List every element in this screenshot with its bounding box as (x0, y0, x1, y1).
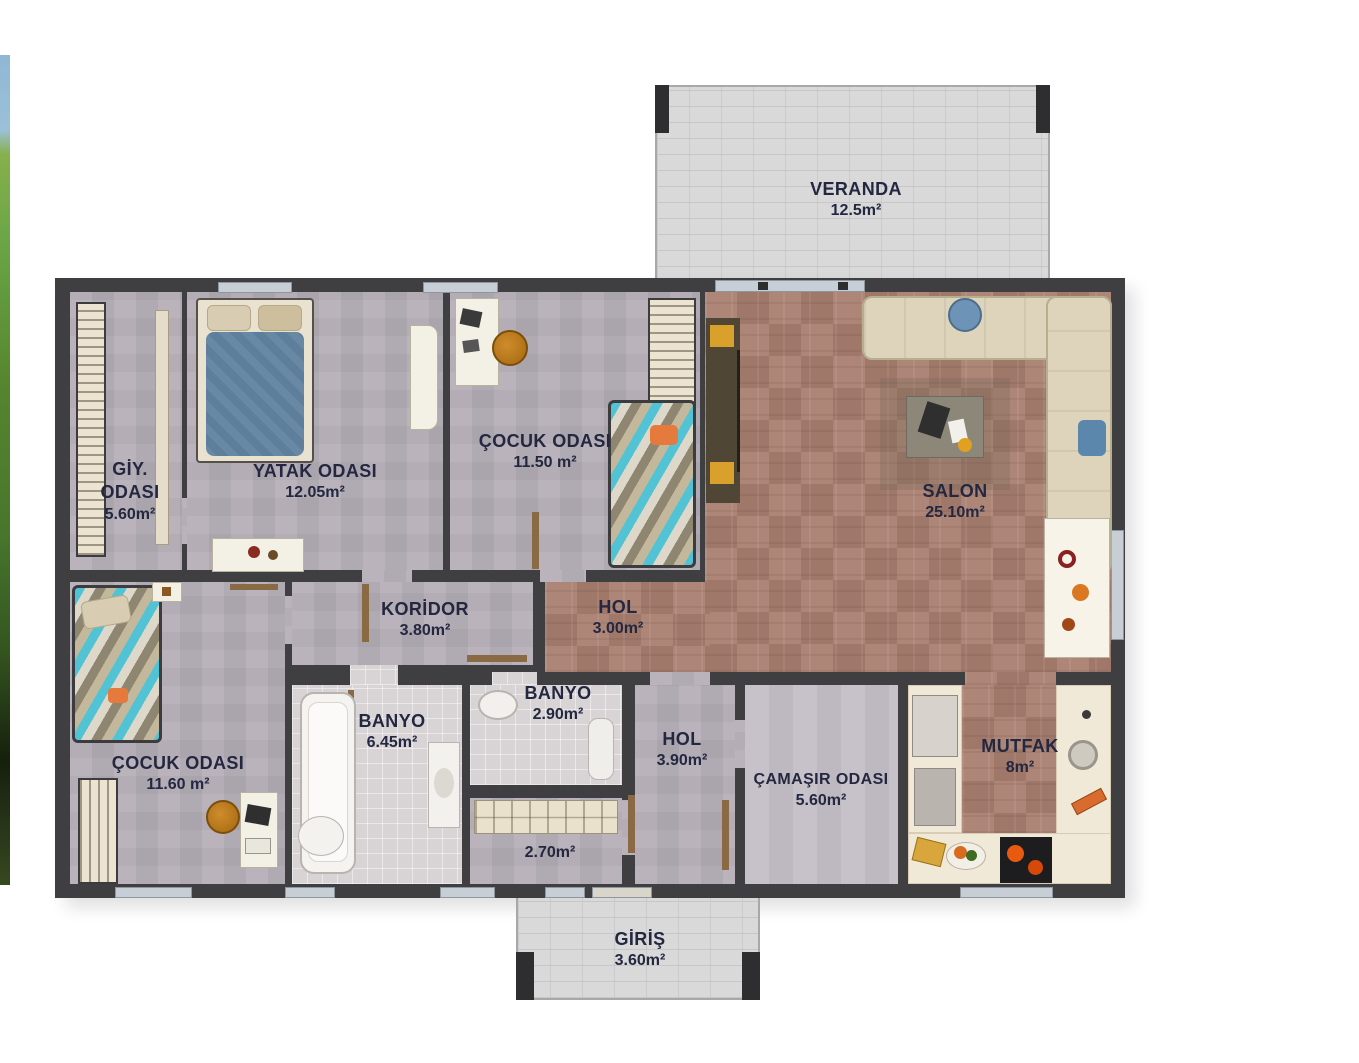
shelf-unit (474, 800, 618, 834)
plate (1062, 618, 1075, 631)
tv-unit-accent (710, 462, 734, 484)
window (115, 887, 192, 898)
room-area: 8m² (981, 758, 1058, 779)
room-area: 11.60 m² (112, 775, 244, 796)
pillow (650, 425, 678, 445)
room-name: ÇAMAŞIR ODASI (754, 770, 889, 791)
desk (240, 792, 278, 868)
door-opening-hol-alt (650, 672, 710, 685)
door-opening-yatak (362, 570, 412, 582)
room-area: 3.80m² (381, 621, 469, 642)
coffee-table-decor (958, 438, 972, 452)
pillow (108, 688, 128, 703)
room-area: 11.50 m² (479, 453, 611, 474)
room-name: HOL (657, 728, 708, 751)
room-name: VERANDA (810, 178, 902, 201)
room-area: 12.05m² (253, 483, 377, 504)
pillow (258, 305, 302, 331)
entrance-door-opening (592, 887, 652, 898)
window (218, 282, 292, 293)
toilet (298, 816, 344, 856)
giris-post-right (742, 952, 760, 1000)
decor-item (268, 550, 278, 560)
room-label-koridor: KORİDOR 3.80m² (381, 598, 469, 642)
stove-burner (1028, 860, 1043, 875)
room-area: 3.60m² (614, 951, 665, 972)
kitchen-item (1082, 710, 1091, 719)
door-opening-banyo-buyuk (350, 665, 398, 685)
room-label-giris: GİRİŞ 3.60m² (614, 928, 665, 972)
desk-items (245, 838, 271, 854)
room-name: BANYO (358, 710, 425, 733)
room-hol-alt (635, 685, 735, 884)
plate (1072, 584, 1089, 601)
fridge (912, 695, 958, 757)
tv-screen (737, 350, 740, 472)
room-label-mutfak: MUTFAK 8m² (981, 735, 1058, 779)
room-area: 2.70m² (525, 843, 576, 864)
room-name: HOL (593, 596, 644, 619)
room-label-camasir-odasi: ÇAMAŞIR ODASI 5.60m² (754, 770, 889, 812)
decor-item (162, 587, 171, 596)
door-leaf (722, 800, 729, 870)
kitchen-sink (1068, 740, 1098, 770)
door-leaf (230, 584, 278, 590)
door-mark (838, 282, 848, 290)
pillow (207, 305, 251, 331)
room-area: 5.60m² (82, 505, 178, 526)
vegetables (966, 850, 977, 861)
room-label-hol-alt: HOL 3.90m² (657, 728, 708, 772)
coffee-table (906, 396, 984, 458)
room-label-salon: SALON 25.10m² (923, 480, 988, 524)
desk-chair (492, 330, 528, 366)
room-label-banyo-kucuk: BANYO 2.90m² (524, 682, 591, 726)
room-area: 5.60m² (754, 791, 889, 812)
vegetables (954, 846, 967, 859)
door-opening-cocuk-ust (540, 570, 586, 582)
room-name: KORİDOR (381, 598, 469, 621)
bed-duvet (206, 332, 304, 456)
cushion (1078, 420, 1106, 456)
toilet (588, 718, 614, 780)
room-label-banyo-buyuk: BANYO 6.45m² (358, 710, 425, 754)
tv-unit-accent (710, 325, 734, 347)
room-label-cocuk-odasi-alt: ÇOCUK ODASI 11.60 m² (112, 752, 244, 796)
desk-items (245, 804, 272, 826)
room-area: 3.90m² (657, 751, 708, 772)
floor-plan-canvas: VERANDA 12.5m² (0, 0, 1359, 1063)
door-opening-cocuk-alt (285, 596, 292, 644)
plate (1058, 550, 1076, 568)
room-label-cocuk-odasi-ust: ÇOCUK ODASI 11.50 m² (479, 430, 611, 474)
room-name: GİY. ODASI (82, 458, 178, 505)
window (960, 887, 1053, 898)
window (545, 887, 585, 898)
door-leaf (362, 584, 369, 642)
left-photo-strip (0, 55, 10, 885)
dishwasher (914, 768, 956, 826)
stove-burner (1007, 845, 1024, 862)
room-name: SALON (923, 480, 988, 503)
room-name: BANYO (524, 682, 591, 705)
washbasin (478, 690, 518, 720)
window (440, 887, 495, 898)
side-table (948, 298, 982, 332)
room-label-veranda: VERANDA 12.5m² (810, 178, 902, 222)
room-label-depo: 2.70m² (525, 843, 576, 864)
room-area: 3.00m² (593, 619, 644, 640)
window (1111, 530, 1124, 640)
passage-salon-mutfak (965, 672, 1056, 685)
decor-item (248, 546, 260, 558)
giris-post-left (516, 952, 534, 1000)
door-leaf (628, 795, 635, 853)
door-mark (758, 282, 768, 290)
door-opening-giy (182, 498, 187, 544)
room-area: 12.5m² (810, 201, 902, 222)
stove (1000, 837, 1052, 883)
washbasin (434, 768, 454, 798)
wardrobe (648, 298, 696, 408)
room-name: GİRİŞ (614, 928, 665, 951)
room-area: 6.45m² (358, 733, 425, 754)
room-area: 2.90m² (524, 705, 591, 726)
room-name: ÇOCUK ODASI (112, 752, 244, 775)
room-name: MUTFAK (981, 735, 1058, 758)
room-area: 25.10m² (923, 503, 988, 524)
room-label-giy-odasi: GİY. ODASI 5.60m² (82, 458, 178, 526)
room-label-hol-ust: HOL 3.00m² (593, 596, 644, 640)
armoire (410, 325, 438, 430)
room-name: ÇOCUK ODASI (479, 430, 611, 453)
window (423, 282, 498, 293)
desk-chair (206, 800, 240, 834)
veranda-post-left (655, 85, 669, 133)
veranda-post-right (1036, 85, 1050, 133)
door-opening-camasir (735, 720, 745, 768)
room-name: YATAK ODASI (253, 460, 377, 483)
room-label-yatak-odasi: YATAK ODASI 12.05m² (253, 460, 377, 504)
desk-items (462, 339, 480, 353)
door-leaf (532, 512, 539, 569)
door-leaf (467, 655, 527, 662)
window (285, 887, 335, 898)
